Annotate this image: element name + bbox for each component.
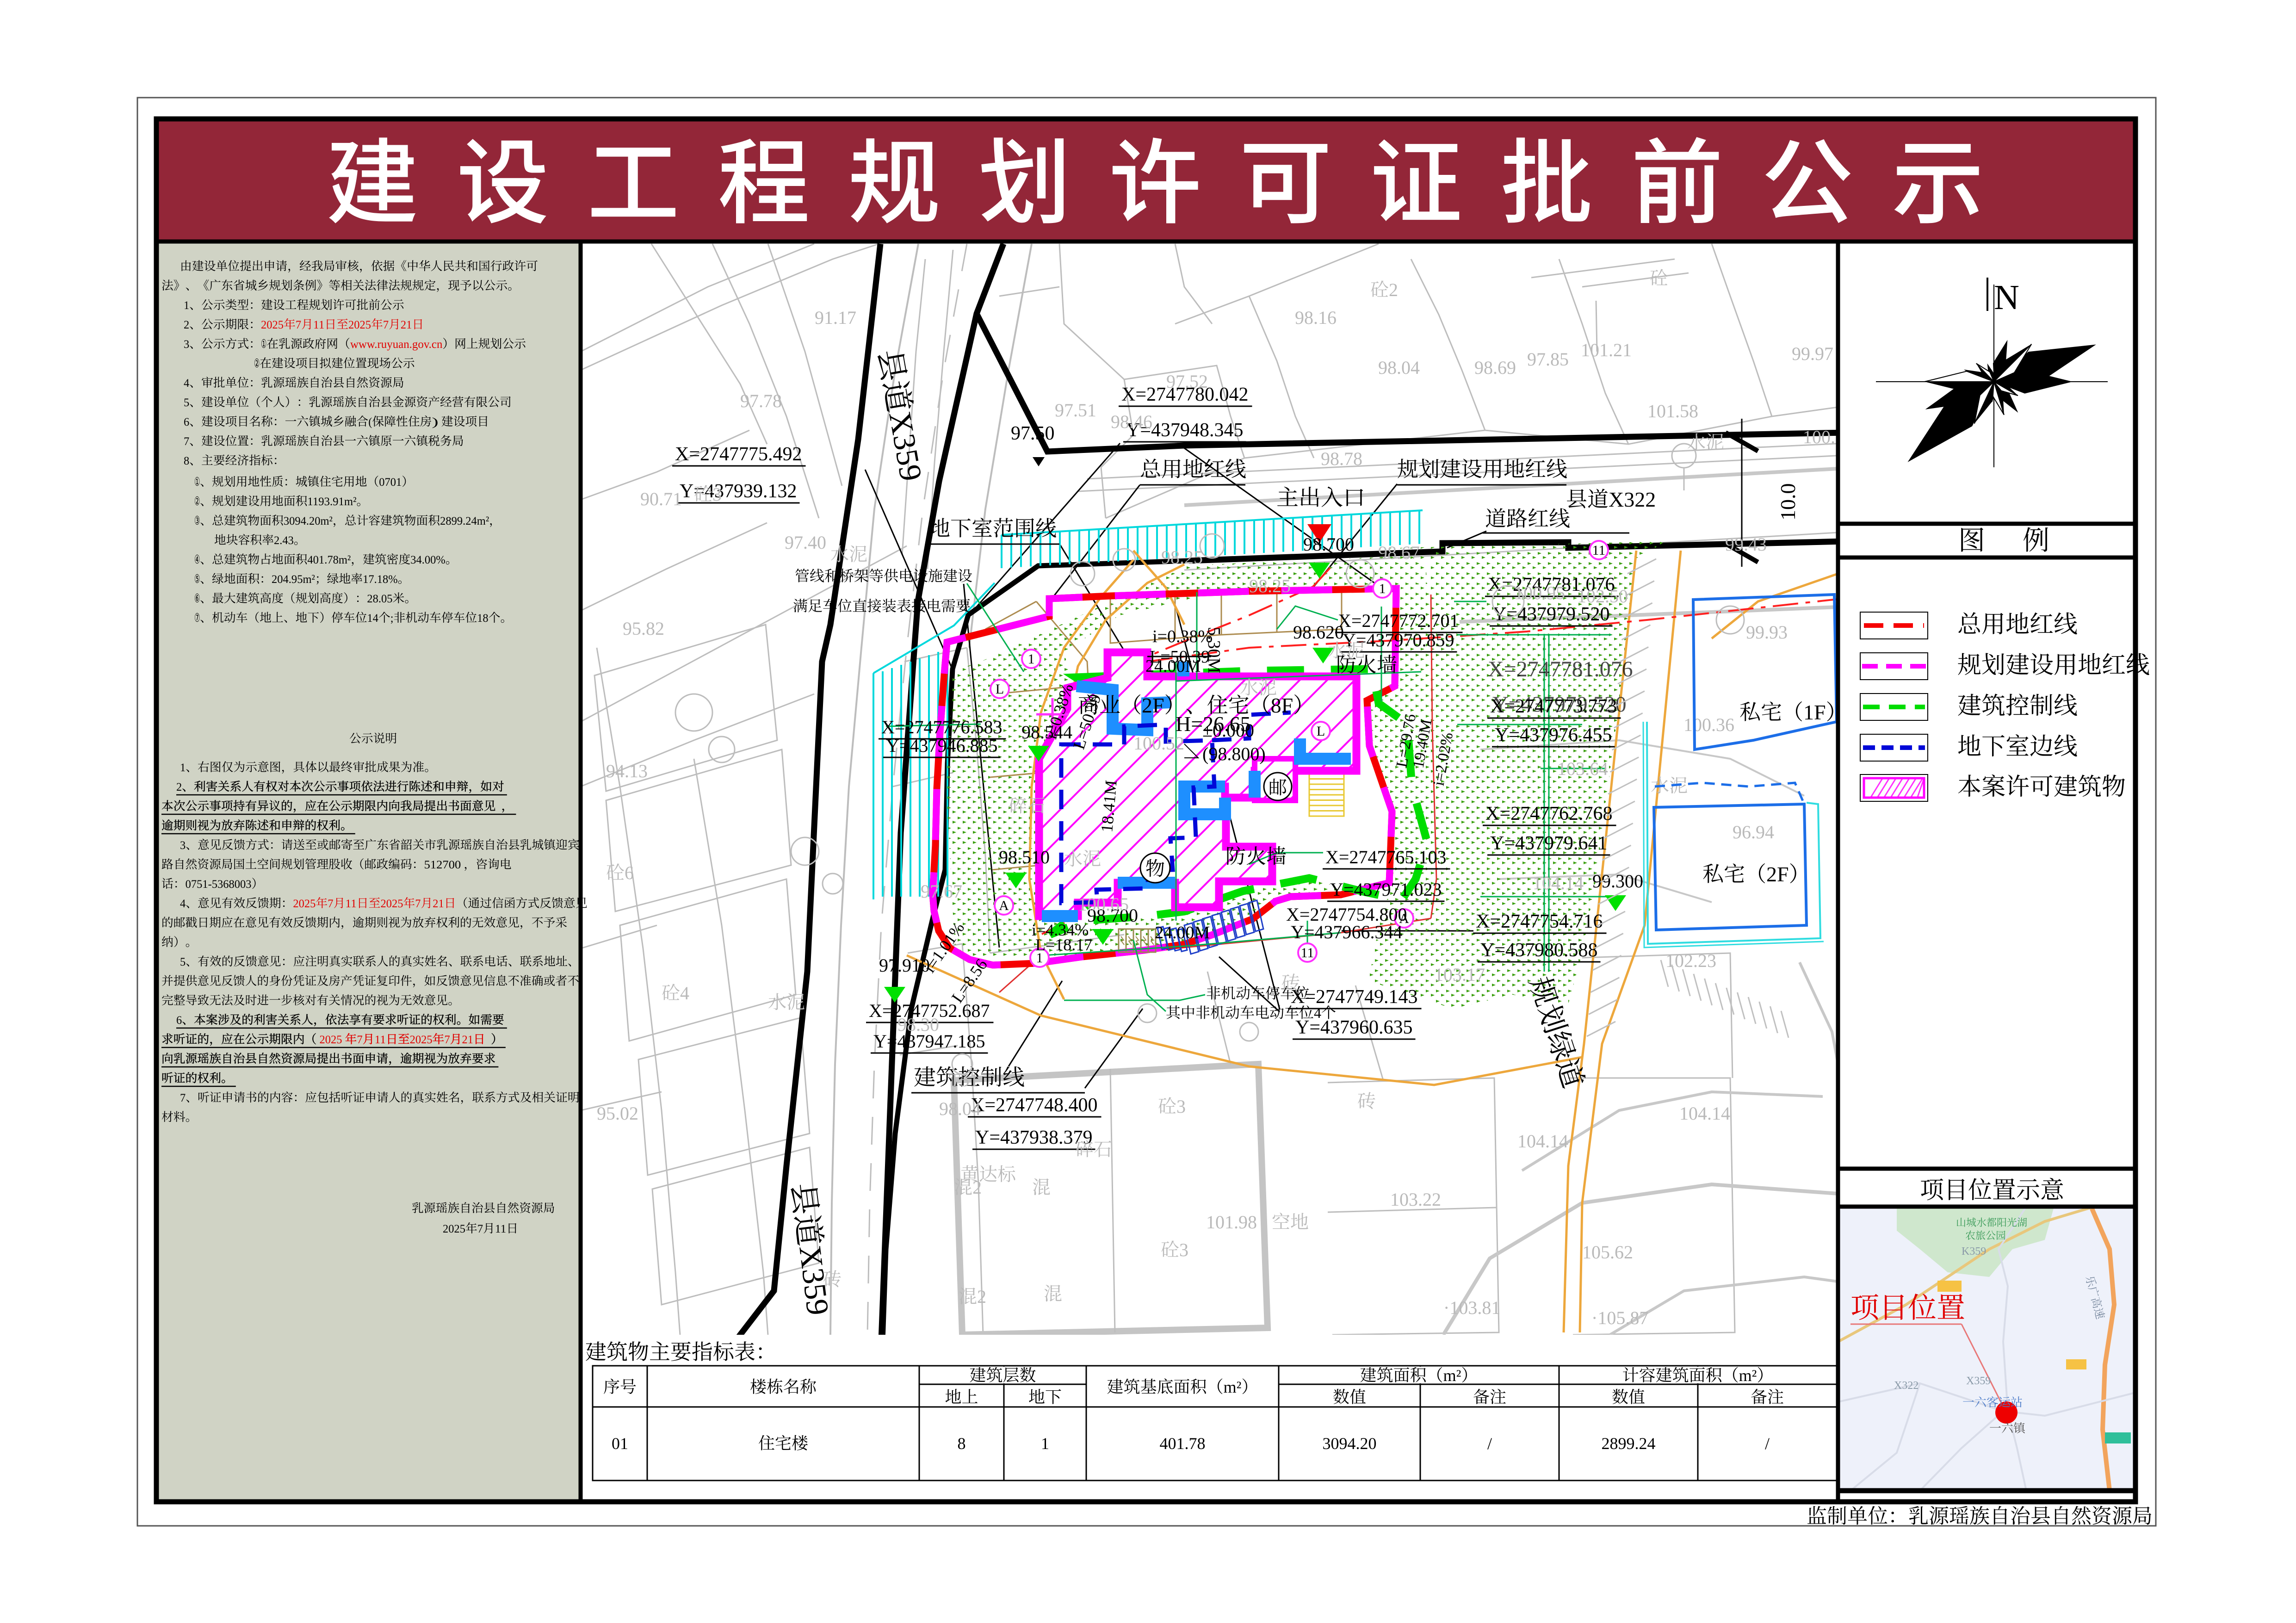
svg-text:2025: 2025 (410, 1033, 433, 1046)
svg-text:/: / (1487, 1434, 1492, 1453)
svg-text:97.85: 97.85 (1527, 349, 1569, 370)
svg-text:2025: 2025 (380, 897, 403, 910)
svg-text:94.13: 94.13 (606, 761, 648, 781)
svg-text:Y=437946.885: Y=437946.885 (886, 735, 997, 756)
svg-text:98.544: 98.544 (1021, 722, 1072, 743)
svg-text:1: 1 (1379, 581, 1386, 596)
svg-text:11: 11 (1592, 543, 1606, 558)
svg-text:98.700: 98.700 (1303, 534, 1354, 555)
svg-text:⑥: ⑥ (194, 592, 200, 605)
svg-text:102.50: 102.50 (1577, 586, 1628, 607)
svg-text:0701: 0701 (379, 475, 402, 489)
svg-text:103.22: 103.22 (1390, 1189, 1441, 1210)
svg-text:104.14: 104.14 (1679, 1103, 1730, 1124)
svg-text:): ) (432, 415, 438, 428)
svg-text:4: 4 (680, 983, 689, 1004)
svg-text:2899.24: 2899.24 (1602, 1434, 1656, 1453)
svg-text:100.52: 100.52 (1133, 733, 1184, 754)
svg-text:/: / (1765, 1434, 1770, 1453)
svg-text:97.52: 97.52 (1166, 371, 1208, 392)
svg-text:98.25: 98.25 (1249, 576, 1291, 596)
svg-text:99.97: 99.97 (1792, 343, 1833, 364)
svg-text:2: 2 (176, 780, 182, 793)
svg-text:103.64: 103.64 (1557, 758, 1608, 779)
svg-text:·103.81: ·103.81 (1443, 1297, 1500, 1318)
svg-text:4: 4 (184, 376, 189, 390)
svg-text:L: L (996, 681, 1004, 697)
svg-text:1193.91m²: 1193.91m² (307, 495, 356, 508)
svg-text:97.51: 97.51 (1055, 400, 1096, 421)
svg-text:8F: 8F (1271, 694, 1293, 717)
svg-text:0751-5368003: 0751-5368003 (186, 877, 252, 891)
svg-text:7: 7 (180, 1091, 186, 1104)
svg-text:24.00M: 24.00M (1155, 923, 1210, 942)
svg-text:14: 14 (367, 611, 378, 625)
svg-text:3: 3 (1179, 1239, 1188, 1260)
svg-text:1F: 1F (1803, 700, 1826, 724)
svg-text:Y=437966.344: Y=437966.344 (1291, 922, 1402, 942)
svg-text:105.62: 105.62 (1582, 1242, 1633, 1263)
svg-text:(: ( (368, 415, 372, 428)
svg-text:A: A (999, 898, 1009, 913)
svg-text:X=2747749.143: X=2747749.143 (1291, 986, 1418, 1008)
svg-text:;: ; (390, 611, 394, 625)
svg-text:6: 6 (176, 1013, 182, 1027)
svg-text:2: 2 (1389, 279, 1398, 300)
svg-text:24.00M: 24.00M (1145, 657, 1201, 676)
svg-text:Y=437971.023: Y=437971.023 (1330, 879, 1442, 900)
svg-text:Y=437979.641: Y=437979.641 (1490, 833, 1608, 854)
svg-text:②: ② (254, 357, 260, 370)
svg-text:103.17: 103.17 (1434, 964, 1485, 985)
svg-text:X=2747748.400: X=2747748.400 (971, 1095, 1098, 1116)
svg-text:34.00%: 34.00% (410, 553, 446, 566)
svg-text:2899.24m²: 2899.24m² (440, 514, 489, 527)
svg-text:②: ② (194, 495, 200, 508)
svg-text:3: 3 (184, 337, 189, 351)
svg-text:2F: 2F (1766, 862, 1789, 886)
svg-text:③: ③ (194, 514, 200, 527)
svg-text:97.40: 97.40 (785, 532, 826, 553)
svg-text:X=2747765.103: X=2747765.103 (1325, 847, 1446, 867)
svg-text:98.510: 98.510 (999, 847, 1050, 867)
svg-text:98.46: 98.46 (1111, 411, 1152, 432)
svg-text:Y=437980.588: Y=437980.588 (1480, 940, 1598, 961)
svg-text:1: 1 (184, 298, 189, 312)
svg-text:2F: 2F (1142, 694, 1164, 717)
svg-text:2.43: 2.43 (274, 533, 294, 547)
svg-text:L: L (1317, 724, 1325, 739)
svg-text:401.78: 401.78 (1160, 1434, 1206, 1453)
svg-text:401.78m²: 401.78m² (307, 553, 351, 566)
svg-text:i=0.38%: i=0.38% (1152, 627, 1213, 646)
svg-text:2: 2 (972, 1177, 982, 1198)
svg-text:1: 1 (1028, 651, 1035, 667)
svg-text:①: ① (261, 337, 266, 351)
svg-text:X=2747773.773: X=2747773.773 (1490, 696, 1617, 717)
svg-text:95.82: 95.82 (623, 618, 664, 639)
svg-text:·105.87: ·105.87 (1591, 1307, 1648, 1328)
svg-text:(98.800): (98.800) (1202, 743, 1266, 764)
svg-text:①: ① (194, 475, 200, 489)
svg-text:100.65: 100.65 (1078, 894, 1129, 915)
svg-text:X359: X359 (1966, 1375, 1991, 1387)
svg-text:11: 11 (345, 897, 356, 910)
svg-text:101.21: 101.21 (1581, 340, 1632, 360)
svg-text:5: 5 (184, 396, 189, 409)
svg-text:Y=437938.379: Y=437938.379 (975, 1127, 1093, 1148)
svg-text:8: 8 (184, 454, 189, 467)
svg-text:11: 11 (495, 1222, 506, 1235)
svg-text:98.25: 98.25 (1161, 547, 1203, 568)
svg-text:2: 2 (977, 1286, 986, 1307)
svg-text:X=2747776.583: X=2747776.583 (881, 717, 1002, 737)
svg-text:2025: 2025 (261, 318, 284, 331)
svg-text:98.67: 98.67 (1378, 542, 1420, 563)
svg-text:100.36: 100.36 (1683, 714, 1734, 735)
svg-text:01: 01 (612, 1434, 628, 1453)
svg-text:Y=437979.520: Y=437979.520 (1492, 604, 1610, 625)
svg-text:Y=437960.635: Y=437960.635 (1295, 1017, 1413, 1038)
svg-text:1: 1 (1041, 1434, 1049, 1453)
svg-text:28.05: 28.05 (367, 592, 392, 605)
svg-text:3094.20m²: 3094.20m² (284, 514, 333, 527)
svg-text:21: 21 (401, 318, 412, 331)
svg-text:T51: T51 (949, 1070, 978, 1090)
svg-text:3: 3 (180, 838, 186, 852)
svg-text:2025: 2025 (293, 897, 316, 910)
svg-text:2025: 2025 (443, 1222, 465, 1235)
svg-text:104.14: 104.14 (1517, 1131, 1568, 1152)
svg-text:98.16: 98.16 (1295, 307, 1337, 328)
svg-text:④: ④ (194, 553, 200, 566)
svg-text:3: 3 (1176, 1096, 1186, 1117)
svg-text:10.0: 10.0 (1776, 483, 1800, 521)
svg-text:3094.20: 3094.20 (1323, 1434, 1377, 1453)
svg-text:X322: X322 (1894, 1380, 1918, 1392)
svg-text:N: N (1994, 278, 2019, 317)
svg-text:7: 7 (184, 434, 189, 448)
svg-text:97.78: 97.78 (740, 390, 782, 411)
svg-text:7: 7 (477, 1222, 483, 1235)
svg-text:1: 1 (180, 761, 186, 774)
svg-text:m²: m² (1739, 1366, 1757, 1385)
svg-text:101.58: 101.58 (1647, 401, 1698, 421)
svg-text:96.94: 96.94 (1733, 822, 1774, 842)
svg-text:6: 6 (184, 415, 189, 428)
svg-text:2025: 2025 (320, 1033, 342, 1046)
svg-text:17.18%: 17.18% (363, 572, 398, 586)
svg-text:3: 3 (712, 484, 722, 505)
svg-text:91.17: 91.17 (815, 307, 856, 328)
svg-text:98.30: 98.30 (897, 1014, 939, 1035)
svg-text:4: 4 (180, 897, 186, 910)
svg-text:⑤: ⑤ (194, 572, 200, 586)
svg-text:97.50: 97.50 (1011, 423, 1055, 444)
svg-text:m²: m² (1443, 1366, 1461, 1385)
svg-text:www.ruyuan.gov.cn: www.ruyuan.gov.cn (350, 337, 443, 351)
svg-text:2025: 2025 (348, 318, 371, 331)
svg-text:11: 11 (313, 318, 324, 331)
svg-text:L=18.17: L=18.17 (1035, 935, 1092, 954)
svg-text:512700: 512700 (424, 858, 461, 871)
svg-text:101.98: 101.98 (1206, 1212, 1257, 1233)
svg-text:99.43: 99.43 (1725, 534, 1767, 555)
svg-text:97.67: 97.67 (921, 881, 962, 902)
svg-text:98.04: 98.04 (939, 1098, 981, 1119)
svg-text:204.95m²: 204.95m² (272, 572, 315, 586)
svg-text:X=2747772.701: X=2747772.701 (1338, 610, 1459, 631)
svg-text:18: 18 (477, 611, 488, 625)
svg-text:6: 6 (625, 862, 634, 883)
svg-text:98.04: 98.04 (1378, 357, 1420, 378)
svg-text:m²: m² (1224, 1378, 1242, 1396)
svg-text:Y=437976.455: Y=437976.455 (1495, 725, 1612, 746)
svg-text:7: 7 (296, 318, 301, 331)
svg-text:99.93: 99.93 (1746, 622, 1788, 643)
svg-text:11: 11 (1301, 945, 1314, 960)
svg-text:7: 7 (383, 318, 389, 331)
svg-text:8: 8 (958, 1434, 966, 1453)
svg-text:±0.000: ±0.000 (1202, 720, 1254, 741)
svg-text:11: 11 (375, 1033, 386, 1046)
svg-text:21: 21 (433, 897, 444, 910)
svg-text:21: 21 (462, 1033, 473, 1046)
svg-text:⑦: ⑦ (194, 611, 200, 625)
svg-text:X=2747775.492: X=2747775.492 (675, 444, 802, 465)
svg-text:5: 5 (180, 955, 186, 968)
svg-text:95.02: 95.02 (597, 1103, 638, 1124)
svg-text:K359: K359 (1962, 1245, 1986, 1258)
svg-text:7: 7 (415, 897, 421, 910)
svg-text:X=2747754.716: X=2747754.716 (1476, 911, 1603, 932)
svg-text:98.78: 98.78 (1321, 448, 1362, 469)
svg-text:X=2747762.768: X=2747762.768 (1485, 803, 1613, 824)
svg-text:7: 7 (357, 1033, 362, 1046)
svg-text:98.69: 98.69 (1474, 357, 1516, 378)
svg-text:7: 7 (328, 897, 333, 910)
svg-text:97.910: 97.910 (879, 955, 930, 976)
svg-text:X322: X322 (1609, 488, 1656, 511)
svg-text:5.30M: 5.30M (1204, 627, 1224, 673)
svg-text:90.71: 90.71 (640, 489, 682, 509)
svg-text:2: 2 (184, 318, 189, 331)
svg-text:104.14: 104.14 (1533, 873, 1584, 893)
svg-text:Y=437970.859: Y=437970.859 (1343, 630, 1454, 650)
svg-text:X=2747781.076: X=2747781.076 (1488, 657, 1633, 681)
svg-text:7: 7 (444, 1033, 450, 1046)
